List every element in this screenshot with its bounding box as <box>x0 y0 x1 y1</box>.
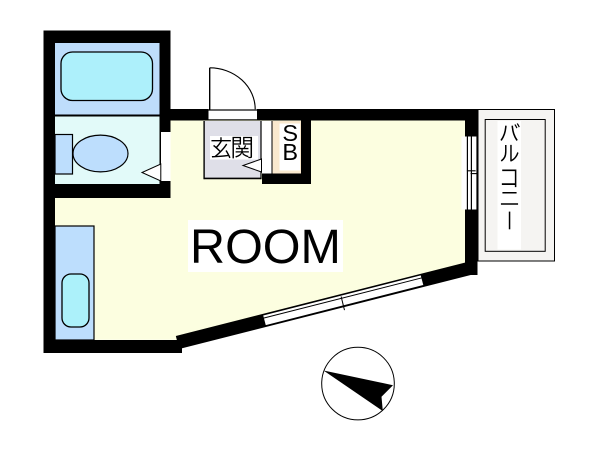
svg-text:ROOM: ROOM <box>190 220 341 274</box>
svg-text:B: B <box>282 139 298 165</box>
